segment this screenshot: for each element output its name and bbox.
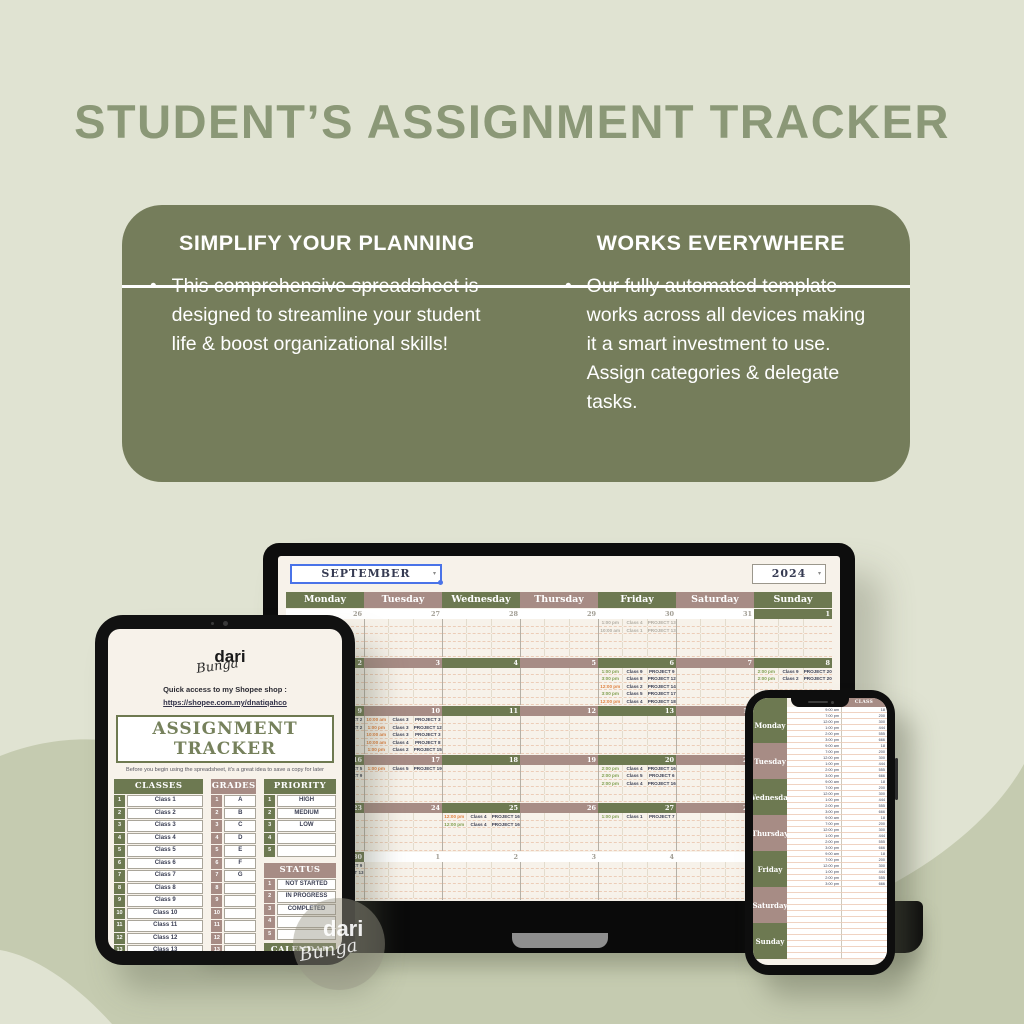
event-project: PROJECT 14	[647, 683, 677, 690]
event-class: Class 2	[622, 683, 647, 690]
event-class	[544, 668, 569, 675]
event-project: PROJECT 12	[413, 724, 443, 731]
event-time	[443, 843, 466, 850]
event-class: Class 1	[622, 627, 647, 634]
row-number: 11	[211, 920, 222, 932]
event-project: PROJECT 16	[491, 813, 521, 820]
event-project	[569, 772, 599, 779]
day-column	[676, 862, 754, 900]
empty-row	[521, 828, 598, 836]
empty-row	[677, 634, 754, 642]
event-project	[647, 828, 677, 835]
event-time	[755, 642, 778, 649]
phone-day-block: Monday9:00 am187:00 pm20012:00 pm3001:00…	[753, 707, 887, 743]
date-cell: 29	[520, 609, 598, 619]
event-project	[491, 787, 521, 794]
empty-row	[365, 772, 442, 780]
day-column	[442, 862, 520, 900]
event-row: 3:00 pmClass 8PROJECT 12	[599, 675, 676, 683]
row-number: 12	[114, 933, 125, 945]
day-label-monday: Monday	[753, 707, 787, 743]
event-time: 1:00 pm	[599, 668, 622, 675]
event-project	[569, 821, 599, 828]
event-class	[388, 892, 413, 899]
empty-row	[443, 619, 520, 627]
event-project	[413, 877, 443, 884]
event-time	[521, 739, 544, 746]
event-project	[413, 698, 443, 705]
event-project: PROJECT 19	[413, 765, 443, 772]
event-time	[365, 649, 388, 656]
event-time	[521, 765, 544, 772]
date-cell: 4	[598, 852, 676, 862]
grade-value: C	[224, 820, 256, 832]
grade-row: 5E	[211, 845, 256, 857]
empty-row	[755, 642, 832, 650]
event-project	[647, 836, 677, 843]
event-time	[365, 884, 388, 891]
date-cell: 13	[598, 706, 676, 716]
empty-row	[365, 862, 442, 870]
event-project	[725, 690, 755, 697]
event-time	[521, 642, 544, 649]
event-class	[544, 627, 569, 634]
event-project	[647, 877, 677, 884]
event-time	[521, 884, 544, 891]
date-cell: 4	[442, 658, 520, 668]
row-number: 1	[264, 879, 275, 891]
empty-row	[755, 683, 832, 691]
day-header-thursday: Thursday	[520, 592, 598, 608]
event-time: 1:00 pm	[599, 813, 622, 820]
empty-row	[677, 765, 754, 773]
grade-row: 12	[211, 933, 256, 945]
empty-row	[443, 862, 520, 870]
chevron-down-icon: ▾	[818, 565, 822, 583]
event-class	[388, 780, 413, 787]
event-project	[491, 731, 521, 738]
row-number: 2	[264, 891, 275, 903]
event-class	[466, 892, 491, 899]
event-class	[466, 772, 491, 779]
month-select[interactable]: SEPTEMBER ▾	[290, 564, 442, 584]
event-project	[647, 731, 677, 738]
empty-row	[677, 892, 754, 900]
event-time	[599, 869, 622, 876]
row-number: 7	[211, 870, 222, 882]
date-cell: 27	[364, 609, 442, 619]
event-time	[677, 731, 700, 738]
event-project: PROJECT 16	[647, 780, 677, 787]
status-header: STATUS	[264, 863, 336, 878]
event-time	[443, 675, 466, 682]
phone-side-button	[895, 758, 898, 800]
status-row: 1NOT STARTED	[264, 879, 336, 891]
empty-row	[599, 716, 676, 724]
event-project	[491, 765, 521, 772]
event-project	[569, 836, 599, 843]
empty-row	[365, 828, 442, 836]
event-project	[647, 634, 677, 641]
event-time	[521, 627, 544, 634]
class-value: Class 12	[127, 933, 203, 945]
page-title: STUDENT’S ASSIGNMENT TRACKER	[0, 94, 1024, 149]
empty-row	[599, 746, 676, 754]
event-class	[388, 772, 413, 779]
event-time	[677, 869, 700, 876]
event-project	[569, 716, 599, 723]
event-time	[755, 683, 778, 690]
grade-row: 3C	[211, 820, 256, 832]
grade-value: A	[224, 795, 256, 807]
class-row: 12Class 12	[114, 933, 203, 945]
day-header-tuesday: Tuesday	[364, 592, 442, 608]
event-project	[491, 698, 521, 705]
tablet-sensor-icon	[211, 622, 214, 625]
event-row: 12:00 pmClass 4PROJECT 18	[599, 698, 676, 706]
event-time	[443, 619, 466, 626]
class-value: Class 2	[127, 808, 203, 820]
event-time	[599, 634, 622, 641]
day-label-tuesday: Tuesday	[753, 743, 787, 779]
empty-row	[365, 780, 442, 788]
event-time	[521, 869, 544, 876]
event-time	[521, 772, 544, 779]
phone-day-block: Saturday	[753, 887, 887, 923]
event-time	[677, 772, 700, 779]
event-class	[388, 787, 413, 794]
empty-row	[521, 787, 598, 795]
event-time	[443, 877, 466, 884]
empty-row	[521, 675, 598, 683]
event-class	[778, 619, 803, 626]
empty-row	[365, 877, 442, 885]
priority-value: LOW	[277, 820, 336, 832]
event-time: 12:00 pm	[443, 813, 466, 820]
event-class	[466, 787, 491, 794]
event-time	[443, 716, 466, 723]
event-class: Class 5	[622, 690, 647, 697]
event-time: 2:00 pm	[599, 765, 622, 772]
event-class: Class 4	[622, 698, 647, 705]
event-project	[569, 668, 599, 675]
event-class	[544, 746, 569, 753]
empty-row	[443, 668, 520, 676]
shopee-link[interactable]: https://shopee.com.my/dnatiqahco	[108, 698, 342, 707]
event-project	[491, 780, 521, 787]
event-class	[622, 892, 647, 899]
promo-bullet-right: • Our fully automated template works acr…	[523, 272, 870, 417]
event-project	[413, 828, 443, 835]
event-class	[388, 642, 413, 649]
event-project	[413, 821, 443, 828]
class-value: Class 5	[127, 845, 203, 857]
tracker-subtitle: Before you begin using the spreadsheet, …	[112, 767, 338, 773]
event-project	[647, 649, 677, 656]
empty-row	[443, 869, 520, 877]
empty-row	[599, 877, 676, 885]
empty-row	[677, 683, 754, 691]
event-project: PROJECT 13	[647, 627, 677, 634]
event-class	[622, 746, 647, 753]
date-cell: 18	[442, 755, 520, 765]
event-time	[677, 690, 700, 697]
empty-row	[521, 690, 598, 698]
event-time	[599, 862, 622, 869]
empty-row	[521, 739, 598, 747]
event-time	[677, 795, 700, 802]
empty-row	[443, 649, 520, 657]
empty-row	[521, 869, 598, 877]
event-class	[700, 884, 725, 891]
class-row: 8Class 8	[114, 883, 203, 895]
event-project	[491, 772, 521, 779]
event-time	[677, 836, 700, 843]
event-class	[700, 813, 725, 820]
event-time	[443, 765, 466, 772]
event-class	[622, 884, 647, 891]
phone-screen: CLASSMonday9:00 am187:00 pm20012:00 pm30…	[753, 698, 887, 965]
event-class	[778, 642, 803, 649]
event-class	[700, 731, 725, 738]
event-class	[388, 627, 413, 634]
event-class	[544, 649, 569, 656]
empty-row	[755, 619, 832, 627]
empty-row	[599, 649, 676, 657]
event-project	[491, 828, 521, 835]
event-time	[365, 877, 388, 884]
event-class	[700, 716, 725, 723]
event-class	[544, 787, 569, 794]
event-class	[466, 675, 491, 682]
grade-value	[224, 920, 256, 932]
event-class	[700, 877, 725, 884]
watermark-script: Bunga	[298, 935, 359, 966]
event-project	[413, 619, 443, 626]
bullet-icon: •	[150, 272, 157, 417]
event-time: 12:00 pm	[599, 683, 622, 690]
day-header-saturday: Saturday	[676, 592, 754, 608]
event-class	[622, 843, 647, 850]
empty-row	[521, 795, 598, 803]
class-value: Class 10	[127, 908, 203, 920]
class-row: 5Class 5	[114, 845, 203, 857]
empty-row	[677, 780, 754, 788]
grade-row: 2B	[211, 808, 256, 820]
empty-row	[677, 884, 754, 892]
event-class	[544, 716, 569, 723]
empty-row	[365, 634, 442, 642]
event-project	[569, 642, 599, 649]
grades-table: GRADES1A2B3C4D5E6F7G89101112131415	[211, 779, 256, 951]
event-project	[647, 869, 677, 876]
event-class	[466, 642, 491, 649]
event-class	[544, 836, 569, 843]
event-class	[544, 780, 569, 787]
event-time	[599, 724, 622, 731]
grade-row: 8	[211, 883, 256, 895]
grade-value: B	[224, 808, 256, 820]
event-class	[388, 877, 413, 884]
event-project	[569, 884, 599, 891]
date-cell: 26	[520, 803, 598, 813]
phone-day-block: Friday9:00 am187:00 pm20012:00 pm3001:00…	[753, 851, 887, 887]
event-class	[700, 668, 725, 675]
event-time: 3:00 pm	[599, 690, 622, 697]
event-time	[521, 892, 544, 899]
event-class	[544, 642, 569, 649]
event-project	[569, 731, 599, 738]
event-class: Class 4	[466, 821, 491, 828]
event-project: PROJECT 18	[647, 698, 677, 705]
empty-row	[443, 828, 520, 836]
day-column: 1:00 pmClass 5PROJECT 19	[364, 765, 442, 803]
event-time	[599, 739, 622, 746]
grade-value	[224, 908, 256, 920]
event-project	[569, 690, 599, 697]
event-project	[725, 627, 755, 634]
event-class	[700, 787, 725, 794]
event-class	[388, 634, 413, 641]
phone-mockup: CLASSMonday9:00 am187:00 pm20012:00 pm30…	[745, 690, 895, 975]
event-class: Class 3	[388, 716, 413, 723]
event-project	[491, 675, 521, 682]
empty-row	[599, 642, 676, 650]
empty-row	[599, 884, 676, 892]
event-time	[443, 795, 466, 802]
event-class	[700, 821, 725, 828]
event-time	[365, 675, 388, 682]
event-row: 12:00 pmClass 4PROJECT 16	[443, 821, 520, 829]
grade-value: F	[224, 858, 256, 870]
day-label-wednesday: Wednesday	[753, 779, 787, 815]
date-cell: 7	[676, 658, 754, 668]
event-time	[521, 836, 544, 843]
row-number: 4	[264, 916, 275, 928]
day-column	[364, 813, 442, 851]
class-value: Class 8	[127, 883, 203, 895]
event-project: PROJECT 16	[491, 821, 521, 828]
value-cell	[841, 953, 887, 959]
date-cell: 27	[598, 803, 676, 813]
empty-row	[365, 843, 442, 851]
day-column	[598, 862, 676, 900]
event-time	[677, 739, 700, 746]
event-row: 12:00 pmClass 2PROJECT 14	[599, 683, 676, 691]
empty-row	[521, 780, 598, 788]
event-project	[647, 642, 677, 649]
event-time	[365, 821, 388, 828]
year-value: 2024	[772, 567, 807, 580]
event-time	[521, 780, 544, 787]
event-project: PROJECT 9	[647, 668, 677, 675]
event-project	[491, 862, 521, 869]
empty-row	[443, 634, 520, 642]
empty-row	[443, 731, 520, 739]
empty-row	[521, 716, 598, 724]
week-date-bar: 2345678	[286, 658, 832, 668]
empty-row	[521, 821, 598, 829]
event-project	[569, 627, 599, 634]
empty-row	[677, 772, 754, 780]
event-time	[443, 724, 466, 731]
empty-row	[521, 843, 598, 851]
empty-row	[443, 746, 520, 754]
date-cell: 6	[598, 658, 676, 668]
empty-row	[443, 627, 520, 635]
class-value: Class 13	[127, 945, 203, 951]
event-time	[755, 627, 778, 634]
event-time	[521, 731, 544, 738]
empty-row	[677, 739, 754, 747]
event-project	[491, 634, 521, 641]
phone-day-block: Wednesday9:00 am187:00 pm20012:00 pm3001…	[753, 779, 887, 815]
event-class	[778, 649, 803, 656]
row-number: 3	[264, 904, 275, 916]
event-time	[443, 780, 466, 787]
event-class	[466, 828, 491, 835]
class-value: Class 4	[127, 833, 203, 845]
event-time	[365, 690, 388, 697]
empty-row	[521, 884, 598, 892]
event-project	[491, 843, 521, 850]
year-select[interactable]: 2024 ▾	[752, 564, 826, 584]
event-time	[677, 724, 700, 731]
day-column	[364, 862, 442, 900]
event-class	[388, 690, 413, 697]
date-cell: 17	[364, 755, 442, 765]
day-column: 2:00 pmClass 4PROJECT 162:00 pmClass 5PR…	[598, 765, 676, 803]
event-class	[622, 724, 647, 731]
event-time	[365, 862, 388, 869]
priority-row: 3LOW	[264, 820, 336, 832]
event-time	[521, 649, 544, 656]
empty-row	[599, 787, 676, 795]
event-time	[677, 862, 700, 869]
event-row: 2:00 pmClass 4PROJECT 16	[599, 780, 676, 788]
empty-row	[521, 772, 598, 780]
empty-row	[521, 877, 598, 885]
row-number: 13	[114, 945, 125, 951]
event-row: 1:00 pmClass 3PROJECT 12	[365, 724, 442, 732]
row-number: 3	[211, 820, 222, 832]
day-column: 1:00 pmClass 4PROJECT 1310:00 amClass 1P…	[598, 619, 676, 657]
empty-row	[365, 675, 442, 683]
event-class	[700, 690, 725, 697]
empty-row	[677, 836, 754, 844]
event-project: PROJECT 7	[647, 813, 677, 820]
day-label-friday: Friday	[753, 851, 787, 887]
bullet-icon: •	[565, 272, 572, 417]
priority-value: HIGH	[277, 795, 336, 807]
empty-row	[365, 649, 442, 657]
date-cell: 8	[754, 658, 832, 668]
event-class	[388, 828, 413, 835]
grade-value: G	[224, 870, 256, 882]
event-time: 10:00 am	[599, 627, 622, 634]
event-project	[413, 634, 443, 641]
empty-row	[521, 765, 598, 773]
event-class	[622, 634, 647, 641]
event-time	[443, 627, 466, 634]
phone-day-block: Sunday	[753, 923, 887, 959]
selection-handle	[438, 580, 443, 585]
event-class	[622, 787, 647, 794]
empty-row	[443, 716, 520, 724]
status-value: NOT STARTED	[277, 879, 336, 891]
empty-row	[443, 877, 520, 885]
empty-row	[677, 821, 754, 829]
